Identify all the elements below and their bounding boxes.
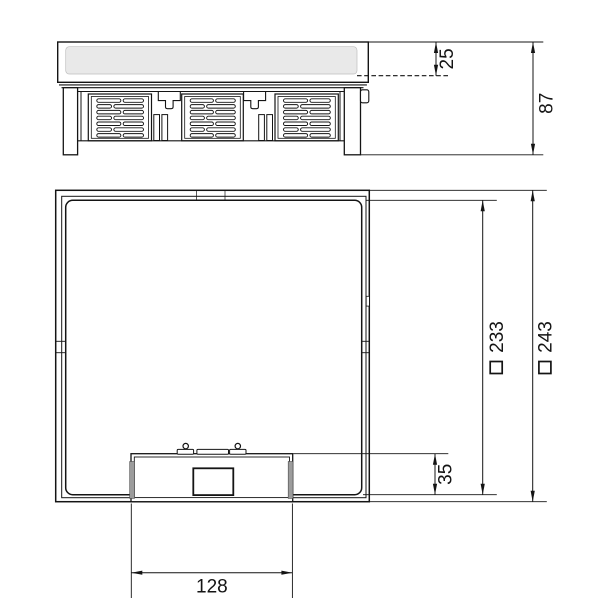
t-slot-left — [158, 92, 180, 109]
grille-slat — [284, 122, 308, 126]
dim-label-233: 233 — [487, 321, 508, 353]
grille-slat — [97, 122, 121, 126]
screw-base-left — [177, 449, 193, 454]
grille-slat — [114, 116, 144, 120]
dim-label-243: 243 — [536, 321, 557, 353]
plan-dimensions: 233 243 35 128 — [131, 190, 556, 598]
technical-drawing-page: 25 87 — [0, 0, 600, 600]
grille-slat — [301, 128, 331, 132]
grille-slat — [190, 134, 213, 138]
grille-slat — [97, 99, 121, 103]
grille-slat — [97, 110, 121, 114]
lid-top-surface — [66, 47, 357, 74]
grille-slat — [284, 128, 299, 132]
outlet-side-shade-right — [288, 462, 293, 499]
grille-slat — [190, 116, 204, 120]
grille-slat — [310, 122, 330, 126]
grille-slat — [190, 110, 213, 114]
grille-slat — [310, 134, 330, 138]
square-symbol-icon — [490, 362, 502, 374]
cable-flap — [193, 468, 233, 495]
grille-slat — [216, 110, 236, 114]
screw-base-right — [230, 449, 246, 454]
grille-slat — [284, 105, 299, 109]
grille-slat — [207, 128, 236, 132]
screw-right — [235, 443, 240, 448]
side-view — [58, 42, 450, 155]
floor-box-dimension-drawing: 25 87 — [0, 0, 600, 600]
dim-label-35: 35 — [435, 464, 456, 485]
side-dimensions: 25 87 — [361, 42, 558, 155]
screw-left — [183, 443, 188, 448]
grille-slat — [97, 116, 112, 120]
t-slot-right — [244, 92, 266, 109]
center-bar — [197, 449, 229, 454]
dim-label-25: 25 — [437, 48, 458, 69]
hinge-mark — [366, 296, 369, 306]
grille-slat — [123, 99, 143, 103]
grille-slat — [190, 105, 204, 109]
grille-slat — [114, 105, 144, 109]
grille-slat — [123, 110, 143, 114]
grille-slat — [310, 110, 330, 114]
side-latch — [361, 90, 369, 103]
grille-slat — [190, 128, 204, 132]
grille-slat — [284, 110, 308, 114]
left-leg — [63, 88, 77, 155]
grille-slat — [123, 122, 143, 126]
grille-slat — [97, 105, 112, 109]
dim-label-128: 128 — [196, 576, 228, 597]
grille-slat — [216, 134, 236, 138]
vent-bar — [154, 115, 160, 141]
grille-slat — [114, 128, 144, 132]
grille-slat — [207, 105, 236, 109]
grille-slat — [207, 116, 236, 120]
vent-bar — [259, 115, 265, 141]
outlet-unit — [130, 443, 293, 501]
grille-slat — [284, 134, 308, 138]
grille-slat — [190, 99, 213, 103]
grille-slat — [97, 128, 112, 132]
grille-slat — [284, 99, 308, 103]
plan-view — [56, 190, 370, 501]
grille-slat — [97, 134, 121, 138]
grille-slats — [97, 99, 330, 137]
outlet-side-shade-left — [130, 462, 135, 499]
grille-slat — [310, 99, 330, 103]
right-leg — [344, 88, 360, 155]
dim-label-87: 87 — [537, 93, 558, 114]
vent-bar — [162, 115, 168, 141]
grille-slat — [216, 99, 236, 103]
square-symbol-icon — [539, 362, 551, 374]
grille-panels — [88, 94, 338, 141]
grille-slat — [284, 116, 299, 120]
grille-slat — [123, 134, 143, 138]
grille-slat — [190, 122, 213, 126]
grille-slat — [301, 116, 331, 120]
vent-bar — [267, 115, 273, 141]
grille-slat — [301, 105, 331, 109]
grille-slat — [216, 122, 236, 126]
